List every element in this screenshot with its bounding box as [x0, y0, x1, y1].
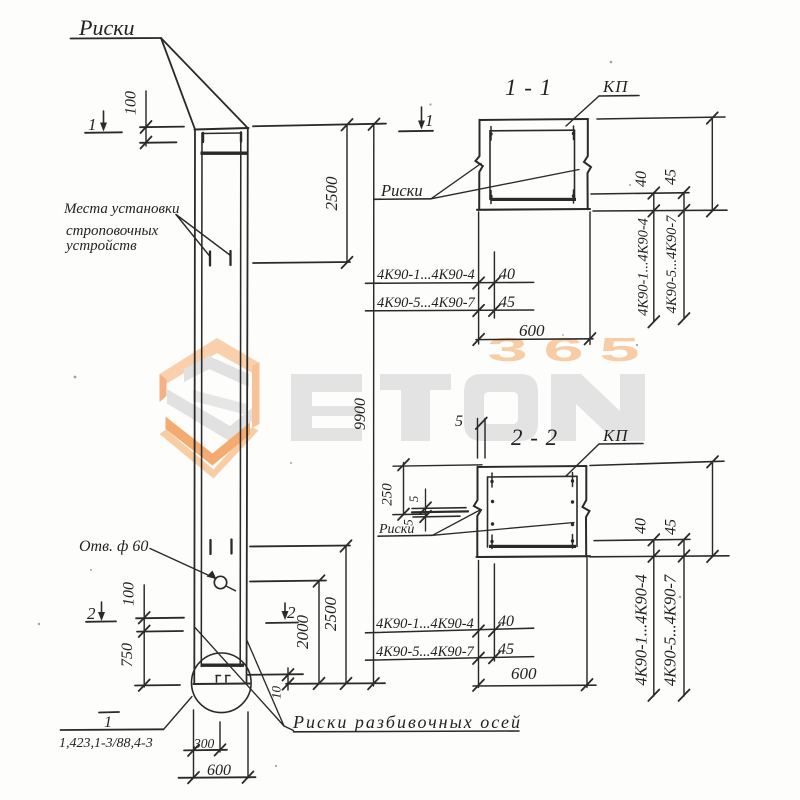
svg-text:1: 1 [104, 714, 112, 731]
svg-text:2 - 2: 2 - 2 [511, 425, 558, 450]
svg-text:5: 5 [455, 413, 463, 430]
svg-text:40: 40 [633, 518, 650, 534]
svg-text:5: 5 [401, 519, 416, 526]
svg-text:40: 40 [499, 266, 515, 283]
svg-text:100: 100 [123, 91, 140, 115]
svg-text:750: 750 [119, 643, 136, 667]
svg-text:2500: 2500 [322, 176, 341, 211]
svg-text:6: 6 [543, 331, 583, 368]
svg-text:4К90-5...4К90-7: 4К90-5...4К90-7 [664, 215, 680, 314]
svg-text:2000: 2000 [293, 615, 312, 650]
svg-text:2500: 2500 [321, 597, 340, 632]
svg-text:Риски разбивочных осей: Риски разбивочных осей [292, 712, 522, 732]
svg-text:1,423,1-3/88,4-3: 1,423,1-3/88,4-3 [59, 736, 153, 751]
svg-text:2: 2 [87, 604, 96, 623]
svg-text:40: 40 [498, 613, 514, 630]
svg-text:600: 600 [511, 664, 537, 683]
svg-text:45: 45 [499, 294, 515, 311]
svg-text:Риски: Риски [380, 181, 423, 200]
svg-text:строповочных: строповочных [66, 223, 159, 239]
svg-text:1 - 1: 1 - 1 [505, 75, 552, 100]
svg-text:1: 1 [88, 115, 97, 134]
svg-text:4К90-1...4К90-4: 4К90-1...4К90-4 [377, 267, 475, 283]
svg-text:600: 600 [519, 321, 545, 340]
svg-text:4К90-1...4К90-4: 4К90-1...4К90-4 [632, 574, 651, 685]
svg-text:45: 45 [498, 641, 514, 658]
svg-text:4К90-5...4К90-7: 4К90-5...4К90-7 [376, 644, 475, 660]
svg-text:Отв. ф 60: Отв. ф 60 [79, 538, 148, 555]
svg-text:4К90-1...4К90-4: 4К90-1...4К90-4 [376, 616, 474, 632]
svg-text:5: 5 [599, 331, 639, 368]
svg-text:4К90-5...4К90-7: 4К90-5...4К90-7 [661, 574, 680, 686]
svg-text:9900: 9900 [352, 398, 369, 430]
svg-text:5: 5 [406, 495, 421, 502]
svg-text:4К90-1...4К90-4: 4К90-1...4К90-4 [636, 218, 652, 316]
svg-text:Места установки: Места установки [63, 201, 179, 217]
svg-text:Риски: Риски [78, 15, 135, 40]
svg-text:600: 600 [207, 762, 231, 779]
svg-text:40: 40 [633, 171, 650, 187]
svg-text:10: 10 [269, 686, 284, 700]
svg-text:300: 300 [193, 736, 215, 751]
svg-text:1: 1 [425, 111, 434, 130]
svg-text:4К90-5...4К90-7: 4К90-5...4К90-7 [377, 295, 476, 311]
svg-text:КП: КП [602, 426, 629, 445]
svg-text:КП: КП [602, 77, 629, 96]
svg-text:100: 100 [121, 582, 138, 606]
svg-text:45: 45 [663, 519, 680, 535]
svg-text:устройств: устройств [64, 238, 137, 254]
svg-text:45: 45 [663, 169, 680, 185]
svg-text:250: 250 [380, 483, 396, 506]
